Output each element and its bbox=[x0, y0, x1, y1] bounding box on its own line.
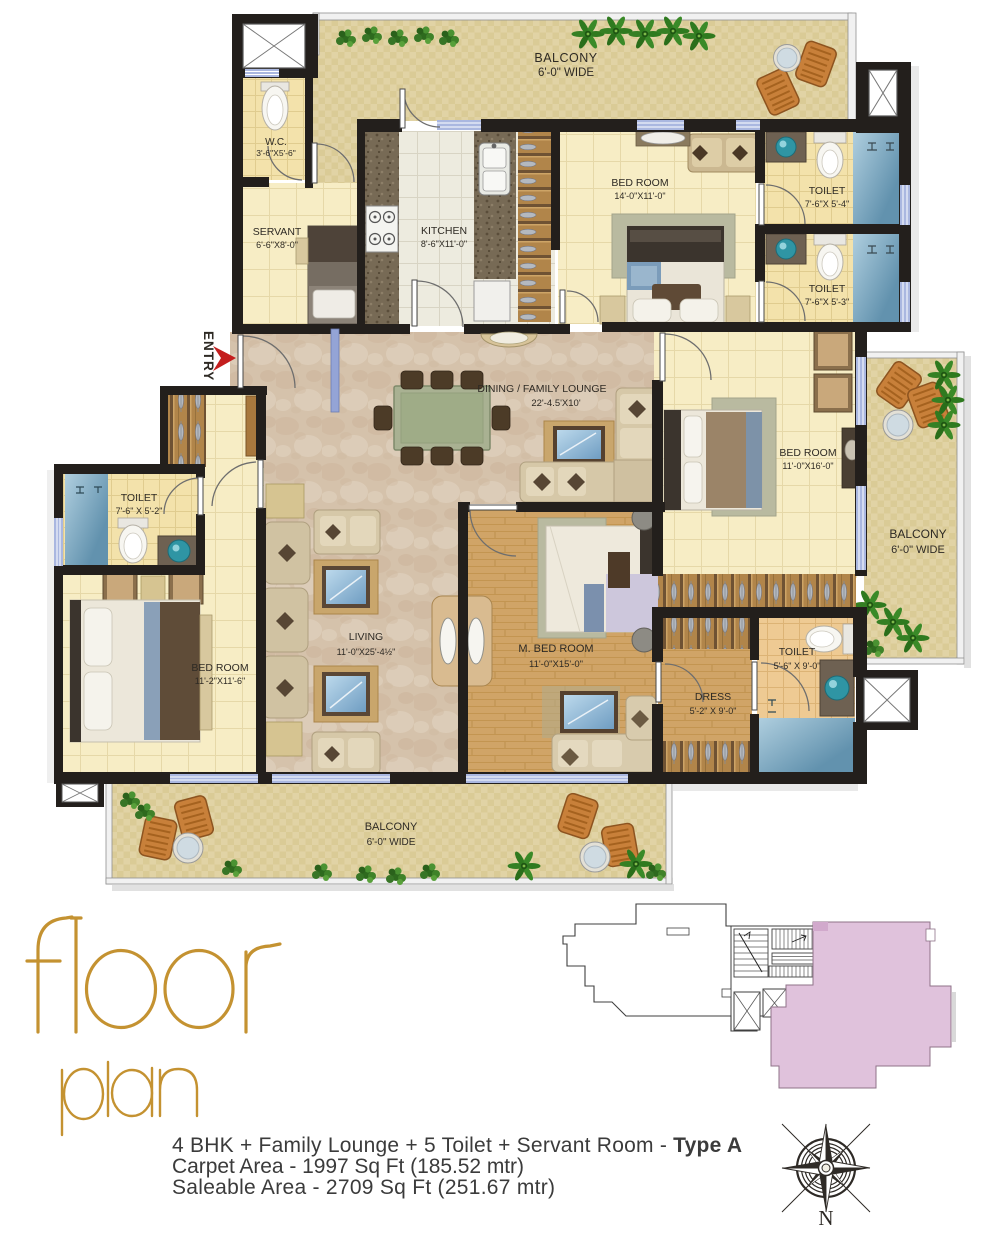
svg-text:22'-4.5'X10': 22'-4.5'X10' bbox=[531, 398, 580, 409]
svg-text:TOILET: TOILET bbox=[809, 185, 846, 197]
svg-text:ENTRY: ENTRY bbox=[201, 331, 216, 381]
svg-text:6'-0" WIDE: 6'-0" WIDE bbox=[891, 544, 945, 556]
svg-text:Saleable Area - 2709 Sq Ft (25: Saleable Area - 2709 Sq Ft (251.67 mtr) bbox=[172, 1176, 555, 1199]
svg-text:M. BED ROOM: M. BED ROOM bbox=[518, 643, 593, 655]
svg-text:BED ROOM: BED ROOM bbox=[611, 177, 668, 189]
svg-text:TOILET: TOILET bbox=[809, 283, 846, 295]
svg-text:BALCONY: BALCONY bbox=[534, 51, 597, 65]
svg-text:8'-6"X11'-0": 8'-6"X11'-0" bbox=[421, 239, 467, 249]
svg-text:KITCHEN: KITCHEN bbox=[421, 225, 467, 237]
svg-text:7'-6"X 5'-3": 7'-6"X 5'-3" bbox=[805, 297, 849, 307]
svg-text:6'-0" WIDE: 6'-0" WIDE bbox=[367, 837, 416, 848]
svg-text:6'-0" WIDE: 6'-0" WIDE bbox=[538, 67, 594, 79]
svg-text:11'-0"X25'-4½": 11'-0"X25'-4½" bbox=[337, 647, 396, 657]
svg-text:5'-2" X 9'-0": 5'-2" X 9'-0" bbox=[690, 706, 737, 716]
svg-text:14'-0"X11'-0": 14'-0"X11'-0" bbox=[614, 191, 665, 201]
svg-text:LIVING: LIVING bbox=[349, 631, 383, 643]
svg-text:7'-6"X 5'-4": 7'-6"X 5'-4" bbox=[805, 199, 849, 209]
svg-text:7'-6" X 5'-2": 7'-6" X 5'-2" bbox=[116, 506, 163, 516]
svg-text:BALCONY: BALCONY bbox=[365, 821, 418, 833]
svg-text:N: N bbox=[818, 1206, 833, 1230]
svg-text:W.C.: W.C. bbox=[265, 137, 287, 148]
svg-text:11'-0"X15'-0": 11'-0"X15'-0" bbox=[529, 659, 583, 670]
svg-text:BALCONY: BALCONY bbox=[889, 527, 946, 541]
svg-text:5'-6" X 9'-0": 5'-6" X 9'-0" bbox=[774, 661, 821, 671]
svg-text:TOILET: TOILET bbox=[121, 492, 158, 504]
svg-text:6'-6"X8'-0": 6'-6"X8'-0" bbox=[256, 240, 298, 250]
svg-text:BED ROOM: BED ROOM bbox=[191, 662, 248, 674]
svg-text:TOILET: TOILET bbox=[779, 646, 816, 658]
svg-text:BED ROOM: BED ROOM bbox=[779, 447, 836, 459]
svg-text:DINING / FAMILY LOUNGE: DINING / FAMILY LOUNGE bbox=[477, 383, 606, 395]
svg-text:3'-6"X5'-6": 3'-6"X5'-6" bbox=[256, 148, 296, 158]
svg-text:11'-2"X11'-6": 11'-2"X11'-6" bbox=[195, 676, 246, 686]
svg-text:Carpet Area - 1997 Sq Ft (185.: Carpet Area - 1997 Sq Ft (185.52 mtr) bbox=[172, 1155, 524, 1178]
svg-text:DRESS: DRESS bbox=[695, 691, 731, 703]
svg-text:SERVANT: SERVANT bbox=[253, 226, 302, 238]
svg-text:11'-0"X16'-0": 11'-0"X16'-0" bbox=[782, 461, 833, 471]
svg-text:4 BHK + Family Lounge + 5 Toil: 4 BHK + Family Lounge + 5 Toilet + Serva… bbox=[172, 1134, 742, 1157]
